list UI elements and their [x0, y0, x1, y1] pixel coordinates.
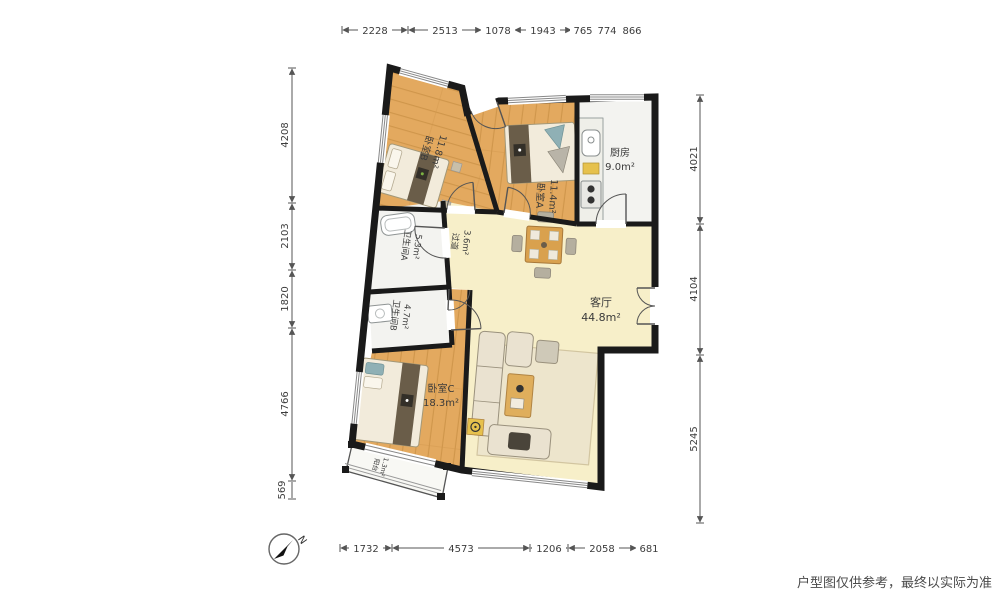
- dim-top-1: 2513: [432, 26, 457, 37]
- dim-left-2: 1820: [280, 286, 291, 311]
- dim-top-6: 866: [622, 26, 641, 37]
- floor-plan-page: 11.8m² 卧室B 11.4m² 卧室A 厨房 9.0m² 3.6m² 过道 …: [0, 0, 1000, 600]
- dim-bottom-1: 4573: [448, 544, 473, 555]
- kitchen-area: 9.0m²: [605, 162, 635, 173]
- living-area: 44.8m²: [581, 311, 621, 324]
- dim-left-3: 4766: [280, 391, 291, 416]
- compass-n-label: N: [295, 534, 308, 546]
- dim-top-4: 765: [573, 26, 592, 37]
- compass-arrow-icon: [274, 540, 293, 559]
- room-label-bathroomB: 4.7m² 卫生间B: [387, 299, 412, 333]
- dim-bottom-0: 1732: [353, 544, 378, 555]
- dim-top-3: 1943: [530, 26, 555, 37]
- dim-bottom-4: 681: [639, 544, 658, 555]
- bedroomC-name: 卧室C: [428, 382, 455, 395]
- room-label-bathroomA: 5.3m² 卫生间A: [398, 229, 424, 263]
- dimensions-bottom: 1732 4573 1206 2058 681: [340, 542, 662, 555]
- bed-bedroomC: [353, 358, 429, 447]
- dim-top-0: 2228: [362, 26, 387, 37]
- dim-right-2: 5245: [689, 426, 700, 451]
- dim-top-5: 774: [597, 26, 616, 37]
- disclaimer-text: 户型图仅供参考，最终以实际为准: [797, 575, 992, 591]
- dim-left-0: 4208: [280, 122, 291, 147]
- dim-bottom-3: 2058: [589, 544, 614, 555]
- bedroomA-name: 卧室A: [533, 182, 547, 209]
- dim-right-1: 4104: [689, 276, 700, 301]
- kitchen-counter: [579, 118, 603, 222]
- dimensions-right: 4021 4104 5245: [687, 95, 704, 523]
- window-kitchen-top: [590, 93, 644, 102]
- compass: N: [269, 534, 308, 564]
- dim-top-2: 1078: [485, 26, 510, 37]
- dim-left-1: 2103: [280, 223, 291, 248]
- floor-plan-svg: 11.8m² 卧室B 11.4m² 卧室A 厨房 9.0m² 3.6m² 过道 …: [0, 0, 1000, 600]
- living-name: 客厅: [590, 295, 612, 309]
- bedroomC-area: 18.3m²: [423, 398, 459, 409]
- dim-bottom-2: 1206: [536, 544, 561, 555]
- bed-bedroomA: [504, 122, 577, 184]
- kitchen-name: 厨房: [610, 146, 630, 159]
- dim-right-0: 4021: [689, 146, 700, 171]
- hallway-name: 过道: [448, 232, 461, 251]
- dimensions-left: 4208 2103 1820 4766 569: [275, 68, 296, 504]
- dim-left-4: 569: [277, 480, 288, 499]
- dimensions-top: 2228 2513 1078 1943 765 774 866: [342, 24, 645, 37]
